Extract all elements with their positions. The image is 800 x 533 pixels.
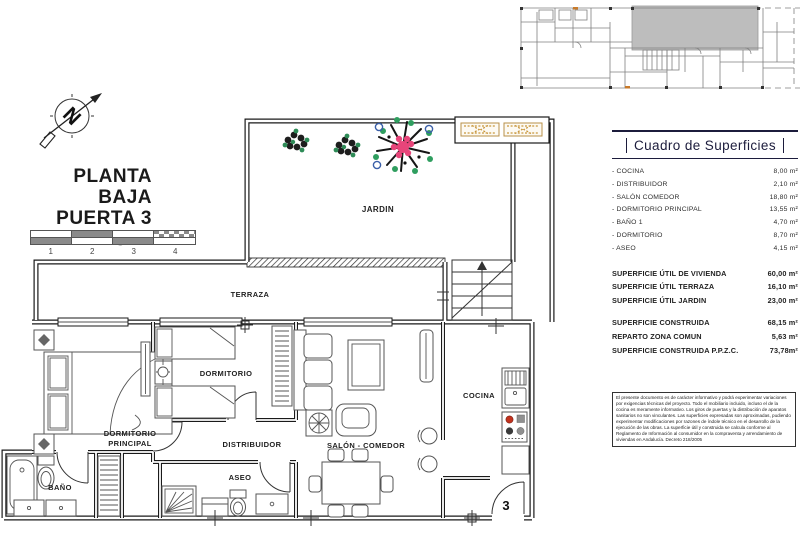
label-bano: BAÑO (48, 483, 72, 492)
vent-grille-icons (455, 117, 549, 143)
stairs (437, 260, 512, 320)
total-label: SUPERFICIE CONSTRUIDA (612, 318, 710, 327)
total-label: REPARTO ZONA COMUN (612, 332, 702, 341)
aseo-fixtures (162, 486, 288, 516)
room-area-label: - DISTRIBUIDOR (612, 181, 668, 188)
section-cut-hatch (247, 258, 445, 267)
total-value: 5,63 m² (772, 332, 798, 341)
plant-icon-small-2 (334, 134, 361, 158)
room-area-row: - ASEO 4,15 m² (612, 245, 798, 258)
keyplan-courtyard (632, 6, 758, 50)
total-row: SUPERFICIE ÚTIL DE VIVIENDA 60,00 m² (612, 269, 798, 283)
floor-plan-page: { "title_block": { "line1": "PLANTA BAJA… (0, 0, 800, 533)
scale-tick: 4 (155, 247, 197, 256)
kitchen-appliances (502, 368, 529, 474)
surface-table: Cuadro de Superficies - COCINA 8,00 m² -… (612, 130, 798, 359)
label-dormitorio-principal-2: PRINCIPAL (108, 439, 151, 448)
total-value: 60,00 m² (768, 269, 798, 278)
label-cocina: COCINA (463, 391, 495, 400)
label-dormitorio-principal-1: DORMITORIO (104, 429, 157, 438)
svg-text:N: N (58, 103, 85, 130)
useful-surface-totals: SUPERFICIE ÚTIL DE VIVIENDA 60,00 m² SUP… (612, 269, 798, 310)
total-label: SUPERFICIE ÚTIL DE VIVIENDA (612, 269, 727, 278)
label-aseo: ASEO (229, 473, 252, 482)
room-area-label: - SALÓN COMEDOR (612, 194, 680, 201)
scale-tick: 2 (72, 247, 114, 256)
room-area-row: - SALÓN COMEDOR 18,80 m² (612, 194, 798, 207)
scale-bar-numbers: 1234 (30, 247, 196, 256)
building-key-plan (520, 6, 800, 89)
plan-title-line1: PLANTA BAJA (28, 166, 152, 208)
room-area-row: - DORMITORIO 8,70 m² (612, 232, 798, 245)
room-area-row: - DISTRIBUIDOR 2,10 m² (612, 181, 798, 194)
table-title: Cuadro de Superficies (634, 138, 776, 153)
door-number: 3 (502, 498, 509, 513)
total-value: 68,15 m² (768, 318, 798, 327)
label-salon-comedor: SALÓN - COMEDOR (327, 441, 405, 450)
label-jardin: JARDIN (362, 205, 394, 214)
table-header: Cuadro de Superficies (612, 132, 798, 158)
label-dormitorio: DORMITORIO (200, 369, 253, 378)
living-room-furniture (294, 330, 437, 517)
label-distribuidor: DISTRIBUIDOR (223, 440, 282, 449)
total-row: REPARTO ZONA COMUN 5,63 m² (612, 332, 798, 346)
header-left-bar (626, 138, 627, 153)
label-terraza: TERRAZA (231, 290, 270, 299)
plan-title-line2: PUERTA 3 (28, 208, 152, 229)
stove-burner (506, 416, 513, 423)
total-label: SUPERFICIE CONSTRUIDA P.P.Z.C. (612, 346, 738, 355)
total-label: SUPERFICIE ÚTIL TERRAZA (612, 282, 714, 291)
scale-tick: 3 (113, 247, 155, 256)
table-mid-rule (612, 158, 798, 159)
room-area-value: 8,00 m² (774, 168, 798, 175)
keyplan-stairwell (643, 50, 679, 70)
north-arrow-icon: N (40, 93, 102, 148)
total-row: SUPERFICIE ÚTIL TERRAZA 16,10 m² (612, 282, 798, 296)
graphic-scale-bar: 1234 (30, 230, 196, 256)
room-area-row: - COCINA 8,00 m² (612, 168, 798, 181)
plant-icon-small-1 (283, 129, 310, 153)
room-area-label: - COCINA (612, 168, 644, 175)
room-area-value: 13,55 m² (770, 206, 798, 213)
scale-bar-segments (30, 230, 196, 245)
room-area-label: - DORMITORIO (612, 232, 663, 239)
total-value: 23,00 m² (768, 296, 798, 305)
window-symbols (58, 318, 392, 326)
room-area-label: - DORMITORIO PRINCIPAL (612, 206, 702, 213)
room-area-list: - COCINA 8,00 m² - DISTRIBUIDOR 2,10 m² … (612, 168, 798, 258)
room-area-row: - BAÑO 1 4,70 m² (612, 219, 798, 232)
plant-icon-large (373, 117, 433, 174)
room-area-value: 8,70 m² (774, 232, 798, 239)
room-area-label: - ASEO (612, 245, 636, 252)
legal-disclaimer: El presente documento es de carácter inf… (612, 392, 796, 447)
room-area-row: - DORMITORIO PRINCIPAL 13,55 m² (612, 206, 798, 219)
total-label: SUPERFICIE ÚTIL JARDIN (612, 296, 706, 305)
room-area-value: 2,10 m² (774, 181, 798, 188)
room-area-value: 4,15 m² (774, 245, 798, 252)
header-right-bar (783, 138, 784, 153)
scale-tick: 1 (30, 247, 72, 256)
total-row: SUPERFICIE CONSTRUIDA 68,15 m² (612, 318, 798, 332)
total-row: SUPERFICIE ÚTIL JARDIN 23,00 m² (612, 296, 798, 310)
total-value: 73,78m² (770, 346, 798, 355)
room-area-value: 4,70 m² (774, 219, 798, 226)
built-surface-totals: SUPERFICIE CONSTRUIDA 68,15 m² REPARTO Z… (612, 318, 798, 359)
room-area-label: - BAÑO 1 (612, 219, 643, 226)
total-row: SUPERFICIE CONSTRUIDA P.P.Z.C. 73,78m² (612, 346, 798, 360)
room-area-value: 18,80 m² (770, 194, 798, 201)
total-value: 16,10 m² (768, 282, 798, 291)
